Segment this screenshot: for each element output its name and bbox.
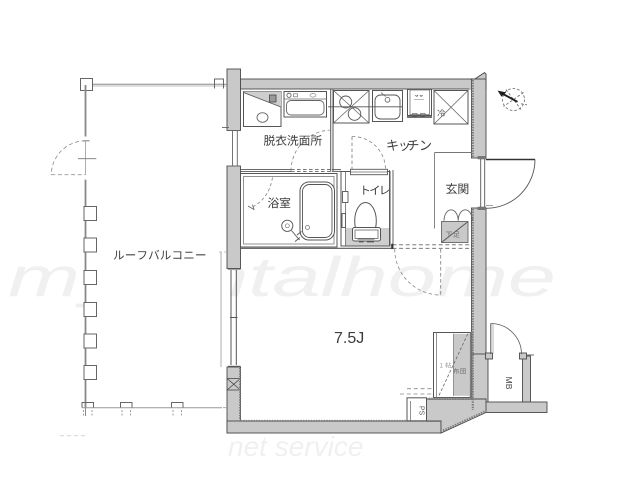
svg-text:7.5J: 7.5J: [334, 330, 364, 347]
svg-text:net service: net service: [228, 431, 363, 462]
svg-text:PS: PS: [418, 406, 425, 416]
svg-text:MB: MB: [504, 377, 514, 390]
